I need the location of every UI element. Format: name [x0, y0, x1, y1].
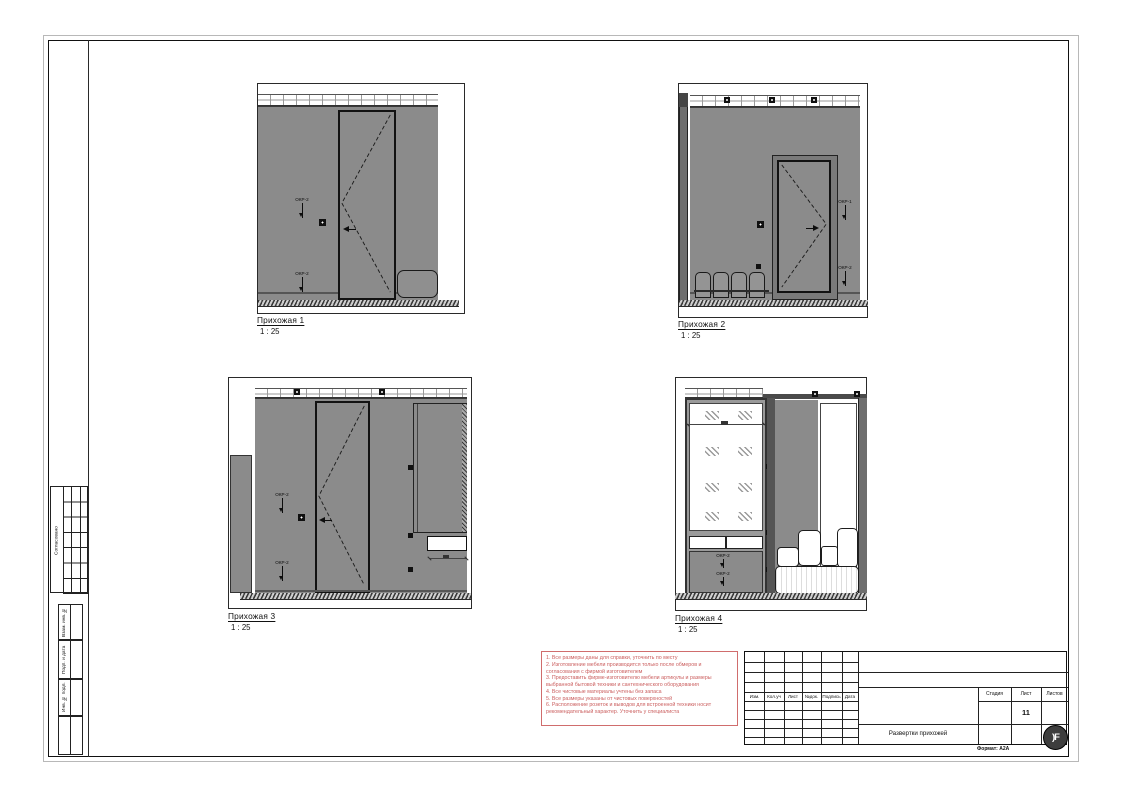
view-title: Прихожая 2: [678, 319, 725, 329]
mirror-hatch-icon: [705, 512, 719, 521]
sheet-number: 11: [1011, 701, 1041, 724]
mirror-hatch-icon: [738, 447, 752, 456]
finish-callout-label: ОКР-2: [295, 197, 308, 202]
floor-line: [675, 599, 867, 600]
pouf: [397, 270, 438, 298]
sofa-back-cushion: [798, 530, 821, 566]
view-title: Прихожая 1: [257, 315, 304, 325]
title-block: Изм. Кол.уч Лист №док. Подпись Дата Стад…: [744, 651, 1067, 745]
stamp-cell: [58, 716, 83, 755]
ceiling-light-marker: [294, 389, 300, 395]
crop-line-right: [464, 83, 465, 313]
sofa-pillow: [821, 546, 838, 566]
bench-cushion: [749, 272, 765, 298]
finish-callout: ОКР-2: [267, 560, 297, 581]
finish-callout-label: ОКР-2: [275, 560, 288, 565]
callout-leader-icon: [845, 205, 846, 220]
ceiling-brick-band: [258, 94, 438, 106]
crop-line-top: [678, 83, 868, 84]
table-line: [70, 717, 71, 754]
finish-callout-label: ОКР-2: [716, 571, 729, 576]
note-line: 4. Все чистовые материалы учтены без зап…: [546, 689, 733, 696]
mirror-hatch-icon: [738, 512, 752, 521]
crop-line-top: [257, 83, 465, 84]
wall-section-column: [679, 93, 688, 303]
drawing-sheet: ОКР-2 ОКР-2 Прихожая 1 1 : 25 ОКР-1 ОКР: [0, 0, 1122, 793]
revision-col-header: Дата: [842, 692, 858, 701]
crop-line-top: [228, 377, 472, 378]
finish-callout: ОКР-2: [287, 197, 317, 218]
finish-callout-label: ОКР-2: [716, 553, 729, 558]
revision-col-header: Лист: [784, 692, 802, 701]
door-opening: [338, 110, 396, 300]
view-title: Прихожая 4: [675, 613, 722, 623]
table-rows: [63, 487, 89, 594]
finish-callout: ОКР-1: [830, 199, 860, 220]
view-scale: 1 : 25: [231, 623, 251, 632]
view-title-line: [675, 610, 867, 611]
sofa-armrest: [777, 547, 799, 567]
stamp-cell: Инв. № подл.: [58, 679, 83, 716]
stamp-cell: Подп. и дата: [58, 640, 83, 679]
view-scale: 1 : 25: [260, 327, 280, 336]
frame-left-inner-line: [88, 40, 89, 757]
bench-cushion: [713, 272, 729, 298]
table-line: [745, 672, 858, 673]
door-swing-dashes: [340, 112, 394, 298]
table-line: [745, 701, 858, 702]
callout-leader-icon: [282, 498, 283, 513]
mirror-hatch-icon: [705, 483, 719, 492]
skirting-line: [255, 590, 467, 592]
wall-section-column-cap: [679, 93, 688, 107]
door-casing: [772, 155, 838, 300]
ceiling-brick-band: [685, 388, 763, 398]
mirror-hatch-icon: [738, 483, 752, 492]
format-label: Формат: А2А: [977, 746, 1057, 756]
revision-col-header: №док.: [802, 692, 821, 701]
socket-marker: [298, 514, 305, 521]
stamp-cell-label: Взам. инв. №: [59, 605, 70, 639]
stage-header: Стадия: [978, 687, 1011, 701]
wardrobe-side-hatch: [462, 404, 467, 532]
dimension-line: [429, 558, 467, 559]
ceiling-light-marker: [724, 97, 730, 103]
mirror-hatch-icon: [738, 411, 752, 420]
door-leaf: [777, 160, 831, 293]
floor-line: [258, 306, 459, 307]
wardrobe-edge-marker: [408, 567, 413, 572]
crop-line-right: [471, 377, 472, 608]
wardrobe-cabinet: [413, 403, 467, 533]
crop-line-top: [675, 377, 867, 378]
drawer-front: [726, 536, 763, 549]
sheet-header: Лист: [1011, 687, 1041, 701]
view-scale: 1 : 25: [681, 331, 701, 340]
note-line: 3. Предоставить фирме-изготовителю мебел…: [546, 675, 733, 689]
crop-line-left: [228, 377, 229, 608]
finish-callout: ОКР-2: [708, 553, 738, 568]
general-notes-box: 1. Все размеры даны для справки, уточнит…: [541, 651, 738, 726]
socket-marker: [319, 219, 326, 226]
bench-base-line: [694, 290, 769, 292]
table-line: [745, 682, 858, 683]
drawing-frame: [48, 40, 1069, 757]
table-line: [745, 719, 858, 720]
crop-line-left: [675, 377, 676, 610]
finish-callout: ОКР-2: [830, 265, 860, 286]
sheets-header: Листов: [1041, 687, 1068, 701]
ceiling-brick-band: [690, 95, 860, 107]
wall-pier-dark: [767, 398, 775, 595]
finish-callout-label: ОКР-2: [275, 492, 288, 497]
finish-callout-label: ОКР-1: [838, 199, 851, 204]
note-line: 6. Расположение розеток и выводов для вс…: [546, 702, 733, 716]
table-line: [858, 672, 1068, 673]
view-scale: 1 : 25: [678, 625, 698, 634]
table-line: [745, 710, 858, 711]
ceiling-light-marker: [811, 97, 817, 103]
door-swing-arrow: [322, 520, 332, 521]
mirror-hatch-icon: [705, 447, 719, 456]
revision-col-header: Изм.: [745, 692, 764, 701]
callout-leader-icon: [282, 566, 283, 581]
view-title-line: [228, 608, 472, 609]
callout-leader-icon: [723, 577, 724, 586]
socket-marker: [757, 221, 764, 228]
table-line: [70, 680, 71, 715]
ceiling-brick-band: [255, 388, 467, 398]
table-line: [745, 728, 858, 729]
floor-line: [679, 306, 868, 307]
dimension-text-illegible: [443, 555, 449, 558]
drawing-title: Развертки прихожей: [858, 723, 978, 744]
ceiling-light-marker: [812, 391, 818, 397]
table-line: [70, 605, 71, 639]
finish-callout: ОКР-2: [287, 271, 317, 292]
stamp-cell-label: Инв. № подл.: [59, 680, 70, 715]
mirror-hatch-icon: [705, 411, 719, 420]
callout-leader-icon: [302, 277, 303, 292]
bench-cushion: [695, 272, 711, 298]
finish-callout-label: ОКР-2: [838, 265, 851, 270]
note-line: 1. Все размеры даны для справки, уточнит…: [546, 655, 733, 662]
door-swing-arrow: [346, 229, 356, 230]
finish-callout: ОКР-2: [708, 571, 738, 586]
dimension-text-illegible: [721, 421, 728, 425]
ceiling-light-marker: [854, 391, 860, 397]
callout-leader-icon: [723, 559, 724, 568]
table-line: [745, 662, 858, 663]
sofa-back-cushion: [837, 528, 858, 568]
finish-callout-label: ОКР-2: [295, 271, 308, 276]
stamp-cell-label: Подп. и дата: [59, 641, 70, 678]
callout-leader-icon: [845, 271, 846, 286]
bench-cushion: [731, 272, 747, 298]
view-title-line: [678, 317, 868, 318]
wardrobe-door-line: [417, 404, 418, 532]
door-opening: [315, 401, 370, 593]
finish-callout: ОКР-2: [267, 492, 297, 513]
wall-edge-column: [858, 398, 867, 595]
approval-label: Согласовано: [51, 487, 63, 594]
wardrobe-edge-marker: [408, 465, 413, 470]
table-line: [70, 641, 71, 678]
floor-line: [240, 599, 471, 600]
return-wall: [230, 455, 252, 593]
ceiling-light-marker: [379, 389, 385, 395]
door-swing-arrow: [806, 228, 816, 229]
ceiling-light-marker: [769, 97, 775, 103]
drawer-front: [689, 536, 726, 549]
note-line: 2. Изготовление мебели производится толь…: [546, 662, 733, 676]
view-title-line: [257, 313, 465, 314]
stamp-cell: Взам. инв. №: [58, 604, 83, 640]
callout-leader-icon: [302, 203, 303, 218]
crop-line-right: [867, 83, 868, 317]
view-title: Прихожая 3: [228, 611, 275, 621]
wardrobe-niche: [427, 536, 467, 551]
bench-marker: [756, 264, 761, 269]
approval-table: Согласовано: [50, 486, 88, 593]
revision-col-header: Кол.уч: [764, 692, 784, 701]
door-swing-dashes: [317, 403, 368, 591]
wardrobe-edge-marker: [408, 533, 413, 538]
revision-col-header: Подпись: [821, 692, 842, 701]
sofa-base: [775, 566, 859, 594]
table-line: [745, 737, 858, 738]
